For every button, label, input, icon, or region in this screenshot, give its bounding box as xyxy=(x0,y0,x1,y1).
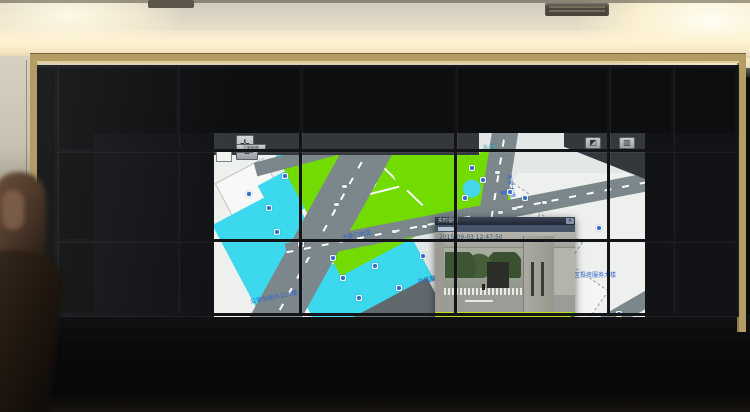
pillar-slot xyxy=(531,262,534,296)
camera-icon[interactable] xyxy=(340,275,346,281)
camera-icon[interactable] xyxy=(282,173,288,179)
right-camera-grid: 2015-09-03 12:472015-09-03 12:472015-09-… xyxy=(645,133,739,317)
monitor-bezel xyxy=(37,65,739,68)
vehicle-marker xyxy=(334,203,339,206)
camera-icon[interactable] xyxy=(246,191,252,197)
close-icon[interactable]: ✕ xyxy=(566,218,574,224)
ceiling-edge xyxy=(0,0,750,3)
road-marking xyxy=(465,300,493,302)
monitor-bezel xyxy=(735,66,738,315)
monitor-bezel xyxy=(607,66,610,315)
hand-highlight xyxy=(2,190,24,230)
monitor-bezel xyxy=(299,66,302,315)
camera-icon[interactable] xyxy=(274,229,280,235)
monitor-bezel xyxy=(56,313,737,316)
video-wall-screens: 千厮门院坝巷道车库院坝后巷 xyxy=(37,65,739,317)
camera-icon[interactable] xyxy=(480,177,486,183)
foreground-hand-silhouette xyxy=(0,160,140,412)
monitor-bezel xyxy=(56,149,737,152)
control-room-photo: 千厮门院坝巷道车库院坝后巷 xyxy=(0,0,750,412)
camera-icon[interactable] xyxy=(469,165,475,171)
monitor-bezel xyxy=(671,66,674,315)
gis-map-application: 千厮门社区平安大道社区服务中心区投资服务大楼公安分局办公大楼 ▤◉⊕▭✚⌂ ✛ … xyxy=(214,133,645,317)
popup-control-chip[interactable] xyxy=(438,227,448,231)
gate-pillar-left xyxy=(435,232,444,312)
ceiling-vent-small xyxy=(148,0,194,8)
vehicle-marker xyxy=(495,171,500,174)
list-view-button[interactable]: ▥ xyxy=(619,137,635,149)
arm xyxy=(0,245,67,412)
camera-icon[interactable] xyxy=(356,295,362,301)
monitor-bezel xyxy=(176,66,179,315)
vehicle-marker xyxy=(542,201,547,204)
monitor-bezel xyxy=(56,239,737,242)
vehicle-marker xyxy=(501,191,506,194)
monitor-bezel xyxy=(454,66,457,315)
camera-icon[interactable] xyxy=(462,195,468,201)
pillar-slot xyxy=(541,262,544,296)
camera-icon[interactable] xyxy=(266,205,272,211)
gate-pillar-right xyxy=(523,236,554,317)
vehicle-marker xyxy=(392,230,397,233)
vehicle-marker xyxy=(422,225,427,228)
camera-icon[interactable] xyxy=(522,195,528,201)
camera-icon[interactable] xyxy=(420,253,426,259)
vehicle-marker xyxy=(342,185,347,188)
camera-icon[interactable] xyxy=(596,225,602,231)
grid-view-button[interactable]: ◩ xyxy=(585,137,601,149)
pedestrian xyxy=(482,284,485,290)
camera-icon[interactable] xyxy=(396,285,402,291)
vehicle-marker xyxy=(498,211,503,214)
camera-icon[interactable] xyxy=(507,189,513,195)
ceiling-vent-diffuser xyxy=(545,3,609,16)
camera-icon[interactable] xyxy=(330,255,336,261)
camera-icon[interactable] xyxy=(372,263,378,269)
vehicle-marker xyxy=(512,207,517,210)
